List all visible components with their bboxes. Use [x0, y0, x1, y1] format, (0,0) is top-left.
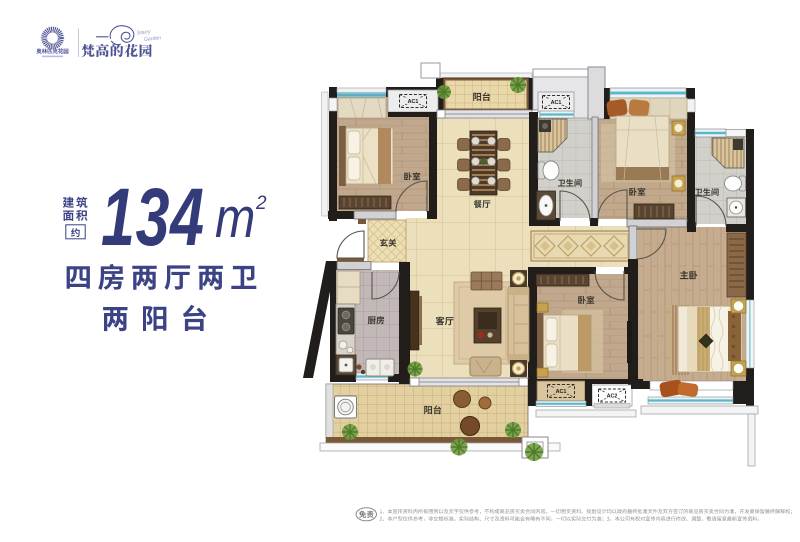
svg-text:m: m [215, 186, 255, 250]
svg-text:AC1: AC1 [408, 99, 419, 105]
svg-text:AC2: AC2 [607, 394, 618, 400]
svg-text:AC1: AC1 [556, 389, 567, 395]
svg-text:AC1: AC1 [551, 100, 562, 106]
svg-text:2: 2 [255, 193, 267, 214]
svg-text:134: 134 [101, 172, 205, 263]
